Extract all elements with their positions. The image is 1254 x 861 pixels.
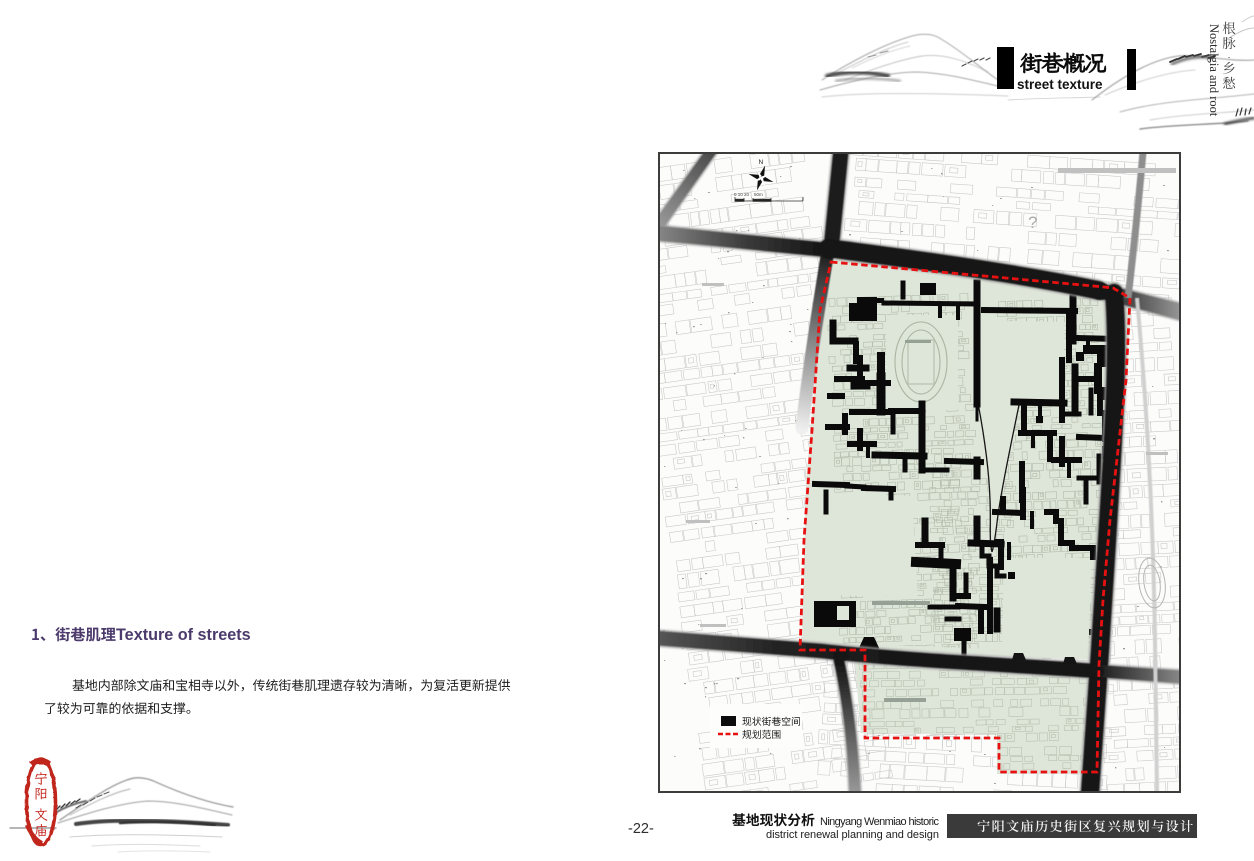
svg-text:Ningyang Wenmiao historic: Ningyang Wenmiao historic bbox=[820, 816, 940, 828]
svg-text:Texture of streets: Texture of streets bbox=[116, 626, 251, 644]
svg-text:0 10 20 50m: 0 10 20 50m bbox=[734, 192, 763, 197]
svg-text:street texture: street texture bbox=[1017, 77, 1103, 92]
svg-text:?: ? bbox=[1028, 213, 1037, 232]
svg-text:N: N bbox=[759, 159, 764, 166]
svg-text:district renewal planning and: district renewal planning and design bbox=[766, 829, 939, 841]
svg-text:-22-: -22- bbox=[628, 821, 654, 837]
